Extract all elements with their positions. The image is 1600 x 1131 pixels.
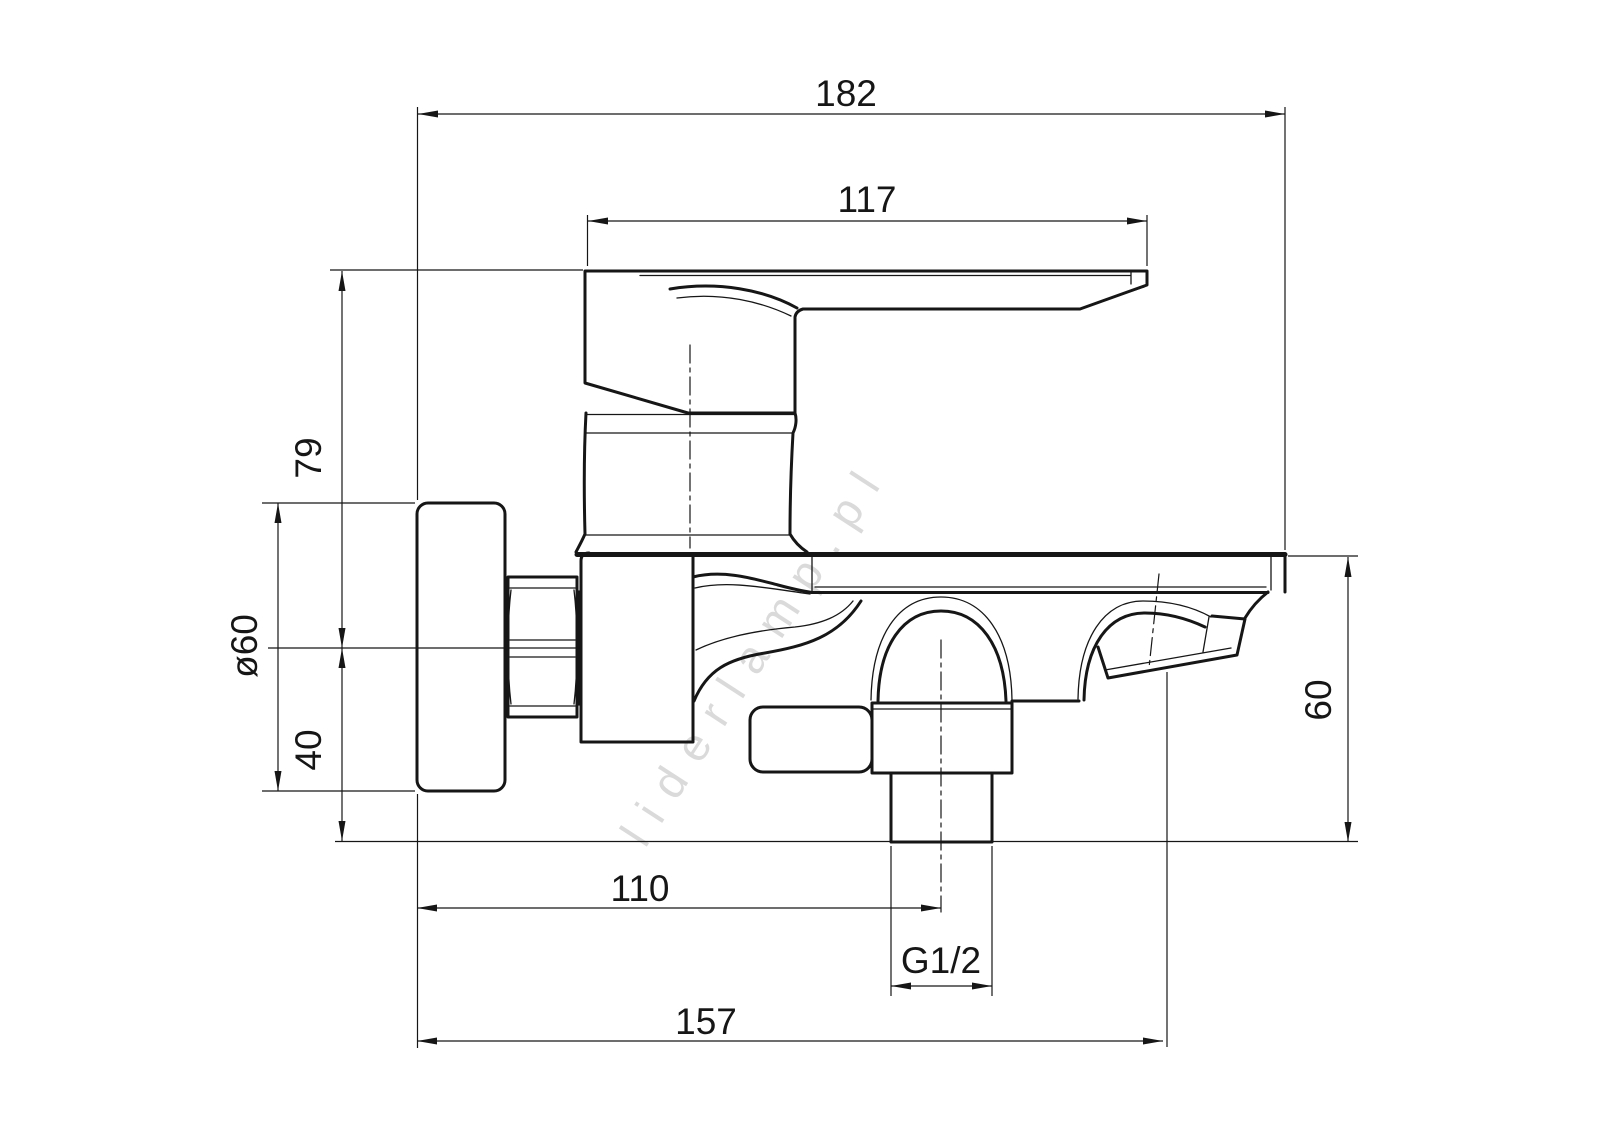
- dimension-labels: 182 117 79 ø60 40 60 110 G1/2 157: [224, 73, 1339, 1042]
- dim-axis-to-bottom: 40: [288, 729, 329, 770]
- diverter-knob: [750, 707, 872, 772]
- dim-shower-thread: G1/2: [901, 940, 981, 981]
- hex-nut: [508, 577, 577, 717]
- aerator-centerline: [1149, 574, 1159, 668]
- watermark-text: liderlamp.pl: [610, 448, 899, 855]
- handle-lever: [585, 271, 1147, 413]
- valve-body: [581, 553, 693, 742]
- aerator: [1098, 616, 1245, 678]
- diverter-body: [872, 703, 1012, 773]
- technical-drawing-canvas: liderlamp.pl: [0, 0, 1600, 1131]
- dim-flange-diameter: ø60: [224, 614, 265, 678]
- dim-handle-height: 79: [288, 437, 329, 478]
- dim-handle-length: 117: [838, 179, 897, 220]
- dim-wall-to-shower-outlet: 110: [611, 868, 670, 909]
- faucet-outline: [417, 271, 1285, 912]
- dim-total-depth: 182: [815, 73, 877, 114]
- dim-wall-to-spout-tip: 157: [675, 1001, 737, 1042]
- wall-flange: [417, 503, 505, 791]
- bath-mixer-technical-drawing: liderlamp.pl: [0, 0, 1600, 1131]
- dim-spout-drop: 60: [1298, 679, 1339, 720]
